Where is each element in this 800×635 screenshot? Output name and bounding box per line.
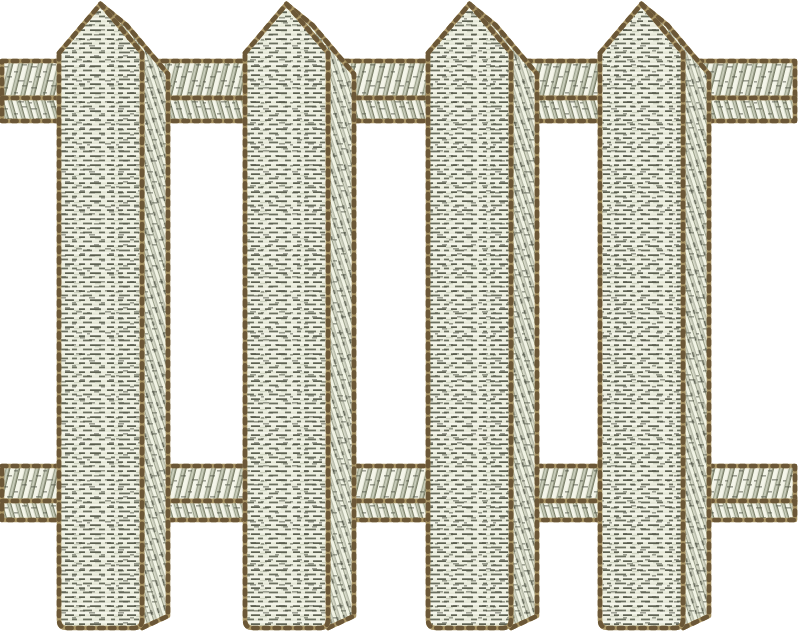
picket-4-front-face-texture xyxy=(600,4,683,628)
picket-4 xyxy=(600,4,709,628)
picket-1-front-face-texture xyxy=(59,4,142,628)
picket-2 xyxy=(245,4,354,628)
picket-1 xyxy=(59,4,168,628)
picket-2-front-face-texture xyxy=(245,4,328,628)
picket-fence-illustration xyxy=(0,0,800,635)
embroidery-canvas xyxy=(0,0,800,635)
picket-3 xyxy=(428,4,537,628)
picket-3-front-face-texture xyxy=(428,4,511,628)
